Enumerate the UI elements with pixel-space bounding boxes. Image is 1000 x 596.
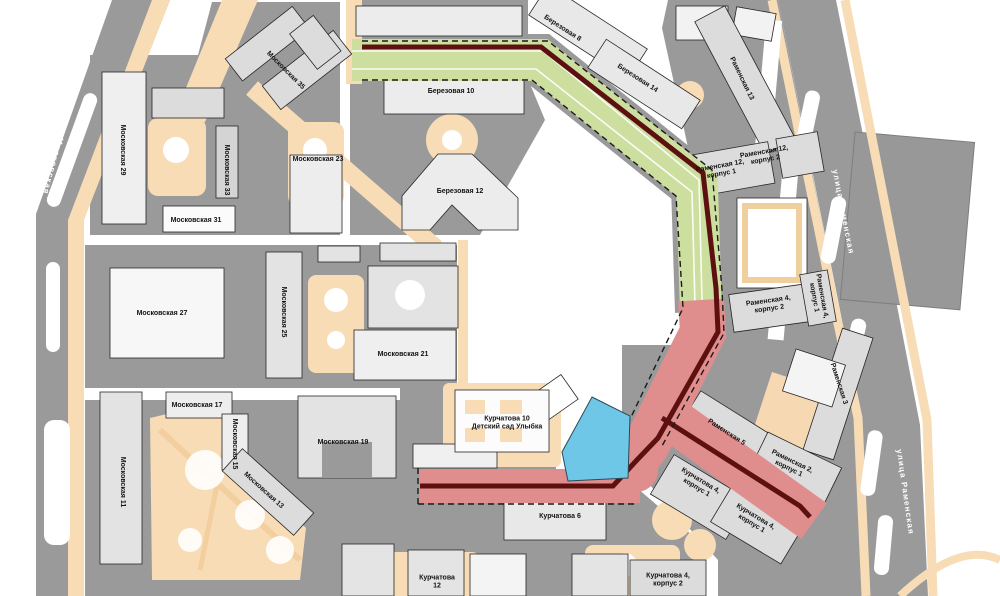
- kindergarten-building: [455, 390, 549, 452]
- industrial-plot: [840, 132, 974, 310]
- site-plan-map: улица Московская улица Московская улица …: [0, 0, 1000, 596]
- map-canvas: [0, 0, 1000, 596]
